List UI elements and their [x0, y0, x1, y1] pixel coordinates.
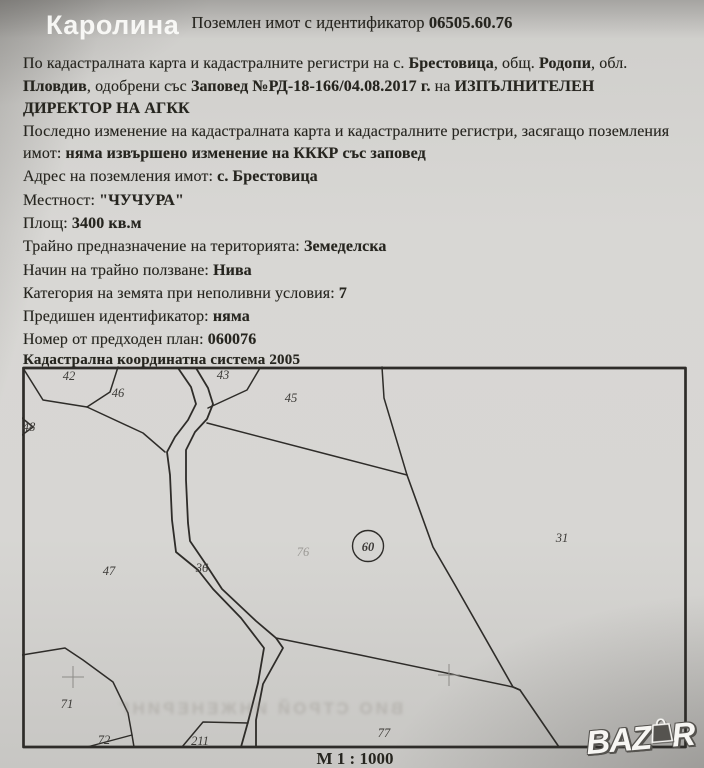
permanent-use-row: Начин на трайно ползване: Нива — [23, 261, 683, 280]
scanned-cadastral-document: Каролина Поземлен имот с идентификатор 0… — [0, 0, 704, 768]
territory-purpose-row: Трайно предназначение на територията: Зе… — [23, 237, 683, 256]
grid-cross-icon — [438, 664, 460, 686]
land-category-row: Категория на земята при неполивни услови… — [23, 284, 683, 303]
parcel-label: 77 — [378, 726, 391, 740]
parcel-boundary-lines — [22, 367, 686, 747]
subject-parcel-number: 60 — [362, 540, 375, 554]
locality-row: Местност: "ЧУЧУРА" — [23, 191, 683, 210]
parcel-label: 42 — [63, 369, 76, 383]
parcel-label: 45 — [285, 391, 298, 405]
previous-plan-number-row: Номер от предходен план: 060076 — [23, 330, 683, 349]
address-row: Адрес на поземления имот: с. Брестовица — [23, 167, 683, 186]
approval-paragraph-line-3: ДИРЕКТОР НА АГКК — [23, 99, 683, 118]
area-row: Площ: 3400 кв.м — [23, 214, 683, 233]
shopping-bag-icon — [648, 714, 675, 746]
page-title: Поземлен имот с идентификатор 06505.60.7… — [0, 13, 704, 32]
last-amendment-line-1: Последно изменение на кадастралната карт… — [23, 122, 683, 141]
parcel-label: 31 — [555, 531, 569, 545]
cadastral-map-drawing: 60 42 46 43 45 48 31 76 47 36 71 72 211 … — [22, 366, 688, 749]
cadastral-map: 60 42 46 43 45 48 31 76 47 36 71 72 211 … — [22, 366, 688, 749]
parcel-label: 47 — [103, 564, 116, 578]
parcel-label: 46 — [112, 386, 125, 400]
title-prefix: Поземлен имот с идентификатор — [192, 13, 429, 32]
last-amendment-line-2: имот: няма извършено изменение на КККР с… — [23, 144, 683, 163]
parcel-label: 36 — [195, 561, 209, 575]
property-identifier: 06505.60.76 — [429, 13, 513, 32]
subject-parcel-marker: 60 — [353, 531, 384, 562]
grid-cross-icon — [62, 666, 84, 688]
parcel-label: 211 — [191, 734, 209, 748]
parcel-label: 76 — [297, 545, 310, 559]
map-frame — [24, 368, 686, 747]
previous-identifier-row: Предишен идентификатор: няма — [23, 307, 683, 326]
parcel-label: 71 — [61, 697, 74, 711]
bazar-logo: BAZR — [584, 705, 704, 768]
parcel-label: 72 — [98, 733, 111, 747]
parcel-label: 43 — [217, 368, 230, 382]
bazar-logo-text-right: R — [670, 715, 696, 755]
bleedthrough-stamp: ВИО СТРОЙ ИНЖЕНЕРИНГ — [80, 699, 440, 719]
approval-paragraph-line-2: Пловдив, одобрени със Заповед №РД-18-166… — [23, 77, 683, 96]
parcel-labels: 42 46 43 45 48 31 76 47 36 71 72 211 77 — [23, 368, 569, 748]
bazar-logo-text-left: BAZ — [585, 719, 653, 763]
approval-paragraph-line-1: По кадастралната карта и кадастралните р… — [23, 54, 683, 73]
parcel-label: 48 — [23, 420, 36, 434]
